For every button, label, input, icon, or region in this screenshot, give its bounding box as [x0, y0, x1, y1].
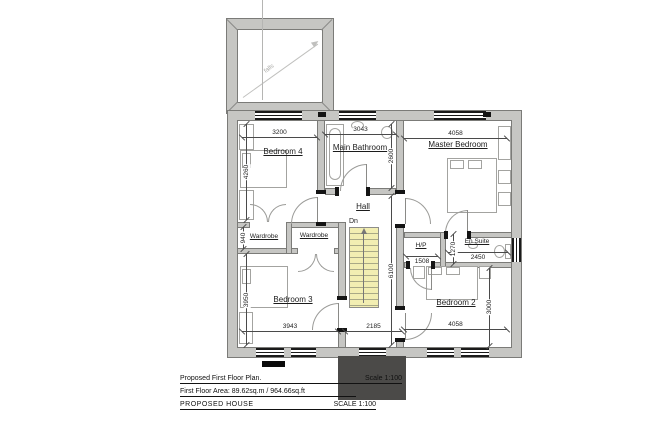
jamb-bed4-b: [316, 222, 326, 226]
title-line-3: PROPOSED HOUSE SCALE 1:100: [180, 400, 376, 410]
title-project-scale: SCALE 1:100: [334, 400, 376, 409]
dim-bedroom2-depth: 3000: [489, 268, 490, 346]
wall-bed3-stairs-a: [338, 222, 346, 298]
jamb-master-a: [395, 190, 405, 194]
chimney-bar: [262, 361, 285, 367]
room-label-wardrobe-right: Wardrobe: [300, 233, 328, 240]
jamb-bed2-b: [395, 338, 405, 342]
wall-hall-master: [396, 226, 404, 310]
bathroom-bath-inner: [329, 128, 341, 180]
jamb-master-b: [395, 224, 405, 228]
title-line-2: First Floor Area: 89.62sq.m / 964.66sq.f…: [180, 387, 356, 397]
window-master: [434, 111, 486, 120]
dim-hall-depth: 6100: [391, 196, 392, 345]
master-wardrobe-unit: [498, 126, 511, 160]
wall-bathroom-hall: [396, 120, 404, 194]
dim-bedroom3-width: 3943: [242, 331, 338, 332]
jamb-bed3-a: [337, 296, 347, 300]
jamb-bed4-a: [316, 190, 326, 194]
jamb-topwall-a: [318, 112, 326, 117]
room-label-main-bathroom: Main Bathroom: [333, 144, 387, 152]
master-door-leaf: [405, 198, 406, 224]
room-label-bedroom3: Bedroom 3: [273, 296, 312, 304]
dim-master-width: 4058: [404, 138, 507, 139]
master-side-table-b: [498, 192, 511, 206]
floor-plan-sheet: falls Dn: [0, 0, 668, 440]
window-bathroom: [339, 111, 376, 120]
dim-bedroom4-depth: 4260: [246, 124, 247, 220]
jamb-ensuite-a: [444, 231, 448, 239]
wall-wardrobe-divider: [286, 222, 292, 254]
title-line-1: Proposed First Floor Plan. Scale 1:100: [180, 374, 402, 384]
dim-bedroom4-width: 3200: [242, 137, 317, 138]
window-bedroom2-a: [427, 348, 454, 357]
title-plan-name: Proposed First Floor Plan.: [180, 374, 261, 383]
room-label-bedroom2: Bedroom 2: [436, 299, 475, 307]
dim-hp-depth: 1270: [453, 234, 454, 264]
room-label-bedroom4: Bedroom 4: [263, 148, 302, 156]
title-plan-scale: Scale 1:100: [365, 374, 402, 383]
staircase: [349, 227, 379, 308]
bedroom4-door-leaf: [317, 197, 318, 224]
master-side-table-a: [498, 170, 511, 184]
window-bedroom3-a: [256, 348, 284, 357]
master-pillow-b: [468, 160, 482, 169]
dim-hp-width: 1508: [406, 256, 438, 257]
jamb-hp-a: [406, 261, 410, 269]
window-bedroom3-b: [291, 348, 316, 357]
title-floor-area: First Floor Area: 89.62sq.m / 964.66sq.f…: [180, 387, 305, 396]
jamb-topwall-b: [483, 112, 491, 117]
jamb-hp-b: [431, 261, 435, 269]
dim-bathroom-width: 3043: [325, 134, 396, 135]
jamb-bath-b: [366, 187, 370, 196]
dim-bedroom2-width: 4058: [404, 329, 507, 330]
bedroom2-door-leaf: [405, 313, 406, 340]
window-bedroom4: [255, 111, 302, 120]
dim-bedroom3-depth: 3950: [246, 254, 247, 345]
ensuite-door-leaf: [467, 210, 468, 233]
dim-bathroom-depth: 2600: [391, 124, 392, 188]
stairs-down-label: Dn: [349, 218, 358, 225]
room-label-master-bedroom: Master Bedroom: [428, 141, 487, 149]
bedroom3-door-leaf: [338, 303, 339, 330]
boundary-line: [262, 0, 263, 100]
dim-landing-width: 2185: [345, 331, 402, 332]
flat-roof-outline: [227, 19, 333, 113]
jamb-bath-a: [335, 187, 339, 196]
master-pillow-a: [450, 160, 464, 169]
hp-door-leaf: [431, 268, 432, 290]
room-label-en-suite: En Suite: [465, 239, 490, 246]
jamb-bed2-a: [395, 306, 405, 310]
window-ensuite: [512, 238, 521, 262]
room-label-wardrobe-left: Wardrobe: [250, 234, 278, 241]
stair-direction-line: [363, 233, 364, 303]
room-label-hall: Hall: [356, 203, 370, 211]
bed2-pillow-b: [446, 267, 460, 275]
title-project-name: PROPOSED HOUSE: [180, 400, 254, 409]
window-bedroom2-b: [461, 348, 489, 357]
room-label-hp: H/P: [416, 243, 427, 250]
stair-direction-arrow: [361, 228, 367, 234]
dim-wardrobe-depth: 940: [243, 227, 244, 249]
